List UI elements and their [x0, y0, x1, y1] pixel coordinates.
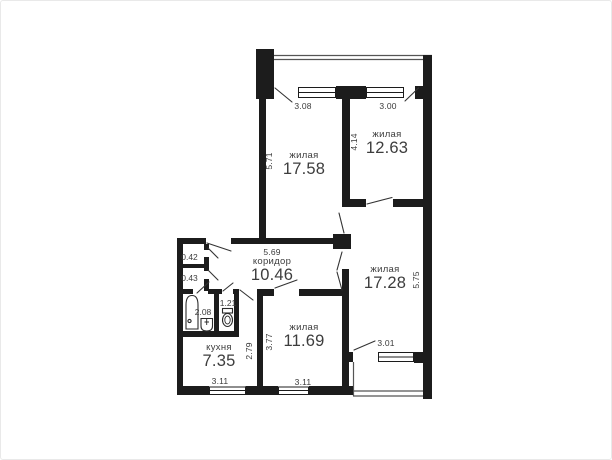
- dimension-label: 3.08: [294, 102, 311, 111]
- room-area-wc: 1.21: [220, 299, 237, 308]
- floor-plan-drawing: [1, 1, 612, 460]
- room-area-closet-bottom: 0.43: [181, 274, 198, 283]
- sink-icon: [201, 319, 213, 332]
- dimension-label: 3.01: [377, 339, 394, 348]
- room-area-bathroom: 2.08: [195, 308, 212, 317]
- door-swing: [275, 88, 292, 102]
- room-label-living3: жилая 17.28: [364, 264, 406, 292]
- floor-plan-canvas: жилая 17.58 жилая 12.63 жилая 17.28 жила…: [0, 0, 612, 460]
- balcony-rail-bottom: [353, 362, 423, 396]
- door-swing: [339, 213, 344, 233]
- room-area: 11.69: [283, 333, 324, 350]
- dimension-label: 3.00: [379, 102, 396, 111]
- door-swing: [367, 198, 392, 205]
- dimension-label: 3.11: [295, 378, 312, 387]
- dimension-label: 2.79: [245, 342, 254, 359]
- door-swing: [223, 283, 233, 291]
- dimension-label: 3.77: [265, 333, 274, 350]
- room-label-corridor: коридор 10.46: [251, 256, 293, 284]
- dimension-label: 5.69: [263, 248, 280, 257]
- room-area: 17.28: [364, 275, 406, 292]
- door-swing: [207, 243, 231, 251]
- window: [279, 387, 309, 395]
- toilet-icon: [223, 309, 233, 327]
- balcony-rail-top: [259, 56, 432, 60]
- door-swing: [337, 272, 342, 290]
- dimension-label: 5.71: [265, 152, 274, 169]
- window: [210, 387, 246, 395]
- dimension-label: 3.11: [212, 377, 229, 386]
- door-swing: [240, 290, 253, 300]
- dimension-label: 5.75: [412, 271, 421, 288]
- door-swing: [337, 252, 342, 270]
- room-label-living4: жилая 11.69: [283, 322, 324, 350]
- room-area: 7.35: [203, 353, 236, 370]
- room-label-living1: жилая 17.58: [283, 150, 325, 178]
- room-area-closet-top: 0.42: [181, 253, 198, 262]
- window: [299, 88, 336, 98]
- door-swing: [208, 270, 218, 280]
- dimension-label: 4.14: [350, 133, 359, 150]
- window: [379, 353, 414, 362]
- door-swing: [354, 341, 375, 350]
- room-area: 17.58: [283, 161, 325, 178]
- room-label-kitchen: кухня 7.35: [203, 342, 236, 370]
- room-area: 10.46: [251, 267, 293, 284]
- room-label-living2: жилая 12.63: [366, 129, 408, 157]
- door-swing: [208, 248, 218, 258]
- room-area: 12.63: [366, 140, 408, 157]
- window: [367, 88, 404, 98]
